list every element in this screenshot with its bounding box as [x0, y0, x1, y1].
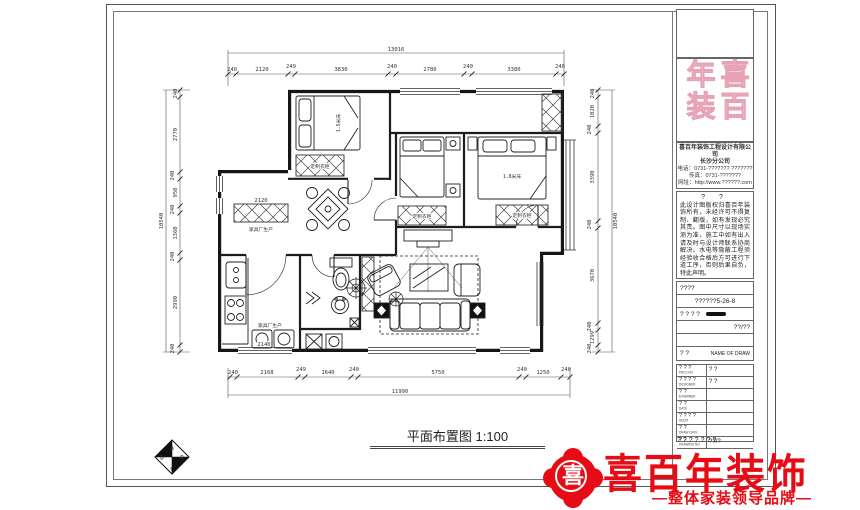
signature-mark — [706, 312, 726, 316]
dim-overall-left: 10540 — [159, 213, 165, 230]
date-row: ??/?? — [677, 321, 753, 334]
project-row: ???? — [677, 282, 753, 295]
laundry — [306, 334, 342, 349]
dim-label: 240 — [170, 205, 176, 215]
table-label-cell: ? ? ? ?AUDIT — [677, 413, 707, 425]
name-of-draw-label: NAME OF DRAW — [711, 351, 750, 357]
dim-label: 240 — [173, 89, 179, 99]
dim-label: 240 — [387, 64, 397, 70]
company-address-box: 喜百年装饰工程设计有限公司 长沙分公司 电话：0731-??????? ????… — [676, 142, 754, 189]
dim-interior: 2120 — [254, 198, 267, 204]
kitchen — [222, 258, 294, 348]
dim-overall-right: 10540 — [613, 213, 619, 230]
marker-letter-bottom: C — [170, 466, 174, 473]
coffee-table — [410, 264, 448, 291]
project-rows: ???? ??????5-26-8 ? ? ? ? ??/?? ? ? NAME… — [676, 281, 754, 361]
dim-label: 240 — [463, 64, 473, 70]
dim-label: 1360 — [173, 226, 179, 239]
table-value-cell — [707, 401, 753, 413]
company-name: 喜百年装饰工程设计有限公司 — [679, 145, 751, 158]
wardrobe-label: 定制衣柜 — [412, 213, 431, 220]
dim-label: 240 — [170, 171, 176, 181]
declaration-text: 此设计图版权归喜百年装饰所有，未经许可不得复制、翻版，如有发现必究其责。图中尺寸… — [680, 203, 750, 277]
dim-label: 2168 — [260, 370, 273, 376]
table-label-cell: ? ?EXAMINER — [677, 389, 707, 401]
table-value-cell — [707, 389, 753, 401]
bed-middle — [400, 137, 460, 197]
dim-label: 2770 — [173, 128, 179, 141]
sofa — [390, 299, 470, 331]
end-tables — [374, 303, 485, 318]
dim-overall-bottom: 11990 — [392, 389, 409, 395]
name-label: ? ? — [680, 350, 689, 357]
dim-label: 240 — [587, 344, 593, 354]
designer-label: ? ? ? ? — [680, 311, 700, 318]
dim-label: 240 — [170, 252, 176, 262]
brand-emblem-char: 喜 — [547, 465, 599, 487]
dim-label: 3830 — [334, 67, 347, 73]
wardrobe-label: 定制衣柜 — [512, 212, 531, 219]
table-label-cell: ? ?DATE — [677, 401, 707, 413]
wardrobes — [234, 94, 562, 311]
dim-label: 240 — [587, 125, 593, 135]
designer-row: ? ? ? ? — [677, 308, 753, 321]
table-value-cell: ? ? — [707, 377, 753, 389]
project-number-row: ??????5-26-8 — [677, 295, 753, 308]
rug — [380, 256, 478, 334]
wardrobe-label: 定制衣柜 — [310, 163, 329, 170]
empty-row — [677, 334, 753, 347]
company-logo-text: 喜百年装 — [681, 59, 749, 141]
table-label-cell: ? ? ?PROJ NO — [677, 365, 707, 377]
dim-label: 240 — [517, 367, 527, 373]
name-of-draw-row: ? ? NAME OF DRAW — [677, 347, 753, 360]
declaration-heading: ? ? — [680, 194, 750, 202]
dim-overall-top: 13016 — [388, 47, 405, 53]
dim-label: 1640 — [321, 370, 334, 376]
dim-label: 3670 — [590, 269, 596, 282]
dim-label: 240 — [587, 220, 593, 230]
bed-top-left — [296, 96, 360, 150]
dim-label: 249 — [296, 367, 306, 373]
bed-right — [468, 137, 556, 199]
brand-emblem-icon: 喜 — [547, 452, 599, 504]
kitchen-label: 家具厂生产 — [258, 322, 282, 329]
armchair-right — [454, 264, 480, 296]
dim-label: 2120 — [255, 67, 268, 73]
dim-label: 240 — [561, 367, 571, 373]
dim-label: 240 — [227, 67, 237, 73]
cabinet-label: 家具厂生产 — [249, 226, 273, 233]
company-sub: 长沙分公司 — [700, 159, 730, 165]
titleblock-top-box — [676, 9, 754, 58]
signature-table: ? ? ?PROJ NO ? ? ? ? ? ?DESIGNER ? ? ? ?… — [676, 364, 754, 442]
bed-label: 1.8米床 — [503, 173, 521, 180]
brand-logo: 喜 喜百年装饰 —整体家装领导品牌— — [543, 441, 860, 510]
dim-label: 1299 — [590, 331, 596, 344]
dim-label: 950 — [173, 188, 179, 198]
contact-line: 传真：0731-??????? — [689, 173, 741, 179]
company-logo-box: 喜百年装 — [676, 58, 754, 142]
dim-label: 240 — [555, 64, 565, 70]
dim-label: 240 — [228, 370, 238, 376]
cad-sheet: 13016 240 2120 249 3830 240 2780 240 338… — [0, 0, 860, 510]
dim-label: 1020 — [590, 105, 596, 118]
bed-label: 1.5米床 — [335, 114, 342, 132]
contact-line: 网址：http://www.??????.com — [678, 180, 752, 186]
dim-label: 240 — [349, 367, 359, 373]
drawing-title: 平面布置图 1:100 — [370, 426, 545, 449]
dim-label: 249 — [286, 64, 296, 70]
dining-table — [307, 188, 350, 231]
marker-letter-left: D — [160, 455, 164, 462]
brand-slogan: —整体家装领导品牌— — [609, 487, 855, 508]
dim-label: 2780 — [423, 67, 436, 73]
dim-label: 3380 — [507, 67, 520, 73]
declaration-box: ? ? 此设计图版权归喜百年装饰所有，未经许可不得复制、翻版，如有发现必究其责。… — [676, 191, 754, 279]
dim-label: 3390 — [590, 170, 596, 183]
dim-label: 5750 — [431, 370, 444, 376]
table-value-cell — [707, 413, 753, 425]
table-label-cell: ? ? ? ?DESIGNER — [677, 377, 707, 389]
index-marker: A B C D — [155, 440, 189, 474]
table-value-cell: ? ? — [707, 365, 753, 377]
marker-letter-right: B — [180, 455, 184, 462]
tv-cabinet — [394, 230, 462, 292]
dim-label: 2990 — [173, 296, 179, 309]
contact-line: 电话：0731-??????? ??????? — [678, 166, 753, 172]
dim-label: 240 — [587, 322, 593, 332]
dim-label: 240 — [170, 344, 176, 354]
dim-interior: 2140 — [257, 342, 270, 348]
dim-label: 1250 — [536, 370, 549, 376]
doors — [246, 180, 538, 295]
marker-letter-top: A — [170, 445, 174, 452]
dim-label: 240 — [590, 89, 596, 99]
